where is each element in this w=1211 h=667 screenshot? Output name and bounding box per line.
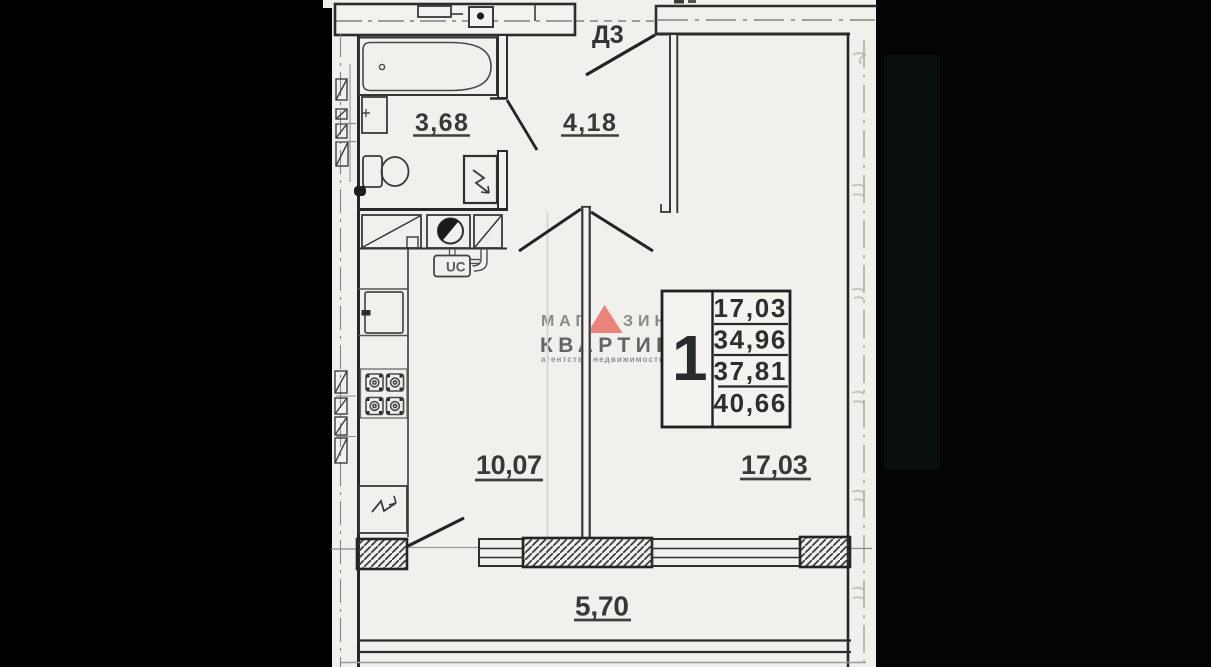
svg-text:5,70: 5,70 <box>575 591 629 622</box>
svg-text:4,18: 4,18 <box>563 109 617 137</box>
svg-text:Д3: Д3 <box>592 21 624 49</box>
svg-text:37,81: 37,81 <box>714 356 788 386</box>
svg-text:1: 1 <box>672 322 708 394</box>
svg-text:UC: UC <box>446 260 466 275</box>
svg-text:3,68: 3,68 <box>415 109 469 137</box>
svg-text:17,03: 17,03 <box>714 293 788 323</box>
svg-text:КВАРТИР: КВАРТИР <box>540 334 676 357</box>
svg-text:агентство недвижимости: агентство недвижимости <box>541 355 665 364</box>
svg-text:34,96: 34,96 <box>714 325 788 355</box>
svg-text:17,03: 17,03 <box>741 450 808 480</box>
svg-text:40,66: 40,66 <box>714 388 788 418</box>
svg-text:10,07: 10,07 <box>476 450 542 480</box>
